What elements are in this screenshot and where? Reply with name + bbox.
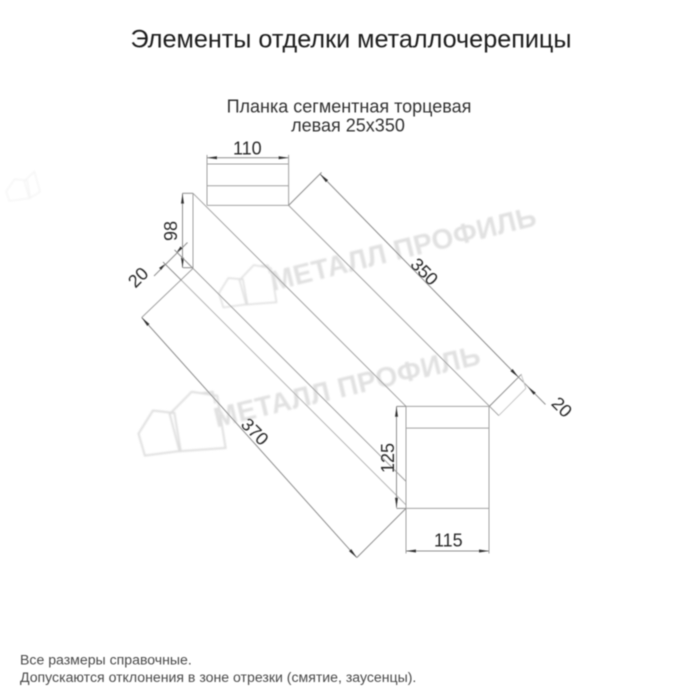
svg-text:Все размеры справочные.: Все размеры справочные. [20,651,192,667]
svg-text:98: 98 [161,221,181,241]
svg-text:110: 110 [233,139,262,159]
svg-text:Планка сегментная торцевая: Планка сегментная торцевая [227,97,472,117]
svg-text:левая 25x350: левая 25x350 [291,116,405,136]
svg-text:20: 20 [548,393,576,421]
svg-text:115: 115 [434,531,463,551]
svg-text:20: 20 [124,263,152,291]
svg-text:Допускаются отклонения в зоне: Допускаются отклонения в зоне отрезки (с… [20,669,416,685]
svg-text:125: 125 [378,443,398,473]
svg-text:МЕТАЛЛ ПРОФИЛЬ: МЕТАЛЛ ПРОФИЛЬ [267,201,540,297]
svg-text:Элементы отделки металлочерепи: Элементы отделки металлочерепицы [131,26,572,54]
